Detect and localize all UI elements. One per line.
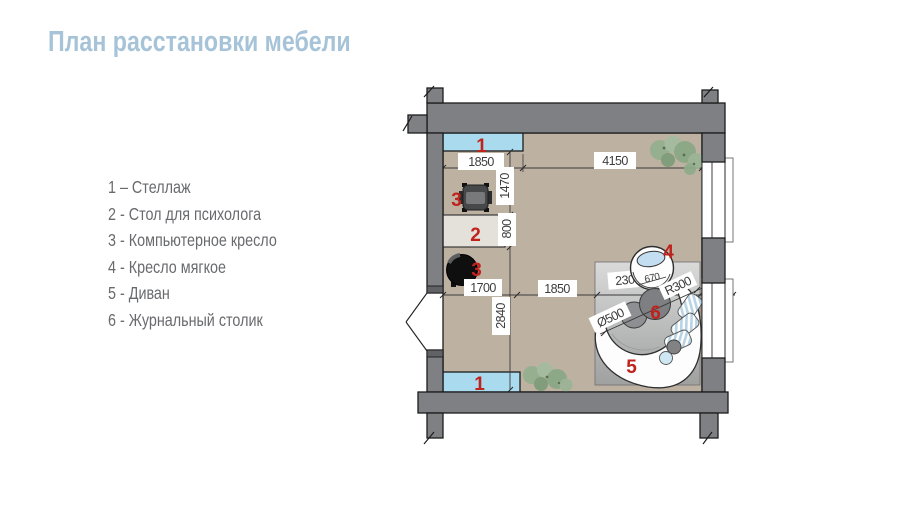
dim-top-right: 4150 xyxy=(602,154,628,168)
marker-chair-top: 3 xyxy=(451,190,461,211)
legend: 1 – Стеллаж 2 - Стол для психолога 3 - К… xyxy=(108,174,314,333)
slide: План расстановки мебели 1 – Стеллаж 2 - … xyxy=(0,0,900,506)
wall-right-bottom xyxy=(702,358,725,392)
page-title: План расстановки мебели xyxy=(48,26,351,59)
dim-mid-center: 1850 xyxy=(544,282,570,296)
window-top xyxy=(702,162,725,238)
wall-right-pier xyxy=(702,238,725,283)
column-bottom-left xyxy=(427,413,443,438)
marker-armchair: 4 xyxy=(663,242,674,263)
marker-chair-bottom: 3 xyxy=(471,260,481,281)
legend-item-sofa: 5 - Диван xyxy=(108,280,277,307)
dim-height-lower: 2840 xyxy=(494,303,508,329)
dim-desk-depth: 800 xyxy=(500,219,514,239)
window-sill-bottom xyxy=(725,279,733,362)
computer-chair-top-icon xyxy=(459,183,492,212)
window-sill-top xyxy=(725,158,733,242)
sofa-cushion-blue-icon xyxy=(660,352,673,365)
dim-mid-left: 1700 xyxy=(470,281,496,295)
legend-item-desk: 2 - Стол для психолога xyxy=(108,201,277,228)
column-bottom-right xyxy=(700,413,718,438)
dim-height-upper: 1470 xyxy=(498,173,512,199)
wall-bottom xyxy=(418,392,728,413)
legend-item-shelf: 1 – Стеллаж xyxy=(108,174,277,201)
marker-sofa: 5 xyxy=(626,357,637,378)
door-swing xyxy=(406,286,443,357)
window-bottom xyxy=(702,283,725,358)
dim-top-left: 1850 xyxy=(468,155,494,169)
wall-left-upper xyxy=(427,133,443,293)
marker-desk: 2 xyxy=(470,225,480,246)
marker-coffee-table: 6 xyxy=(650,303,660,324)
legend-item-armchair: 4 - Кресло мягкое xyxy=(108,254,277,281)
legend-item-computer-chair: 3 - Компьютерное кресло xyxy=(108,227,277,254)
wall-right-top xyxy=(702,133,725,162)
floor-plan: 1850 4150 1470 800 2840 17 xyxy=(390,72,760,457)
legend-item-coffee-table: 6 - Журнальный столик xyxy=(108,307,277,334)
marker-shelf-top: 1 xyxy=(476,136,487,157)
wall-top xyxy=(427,103,725,133)
